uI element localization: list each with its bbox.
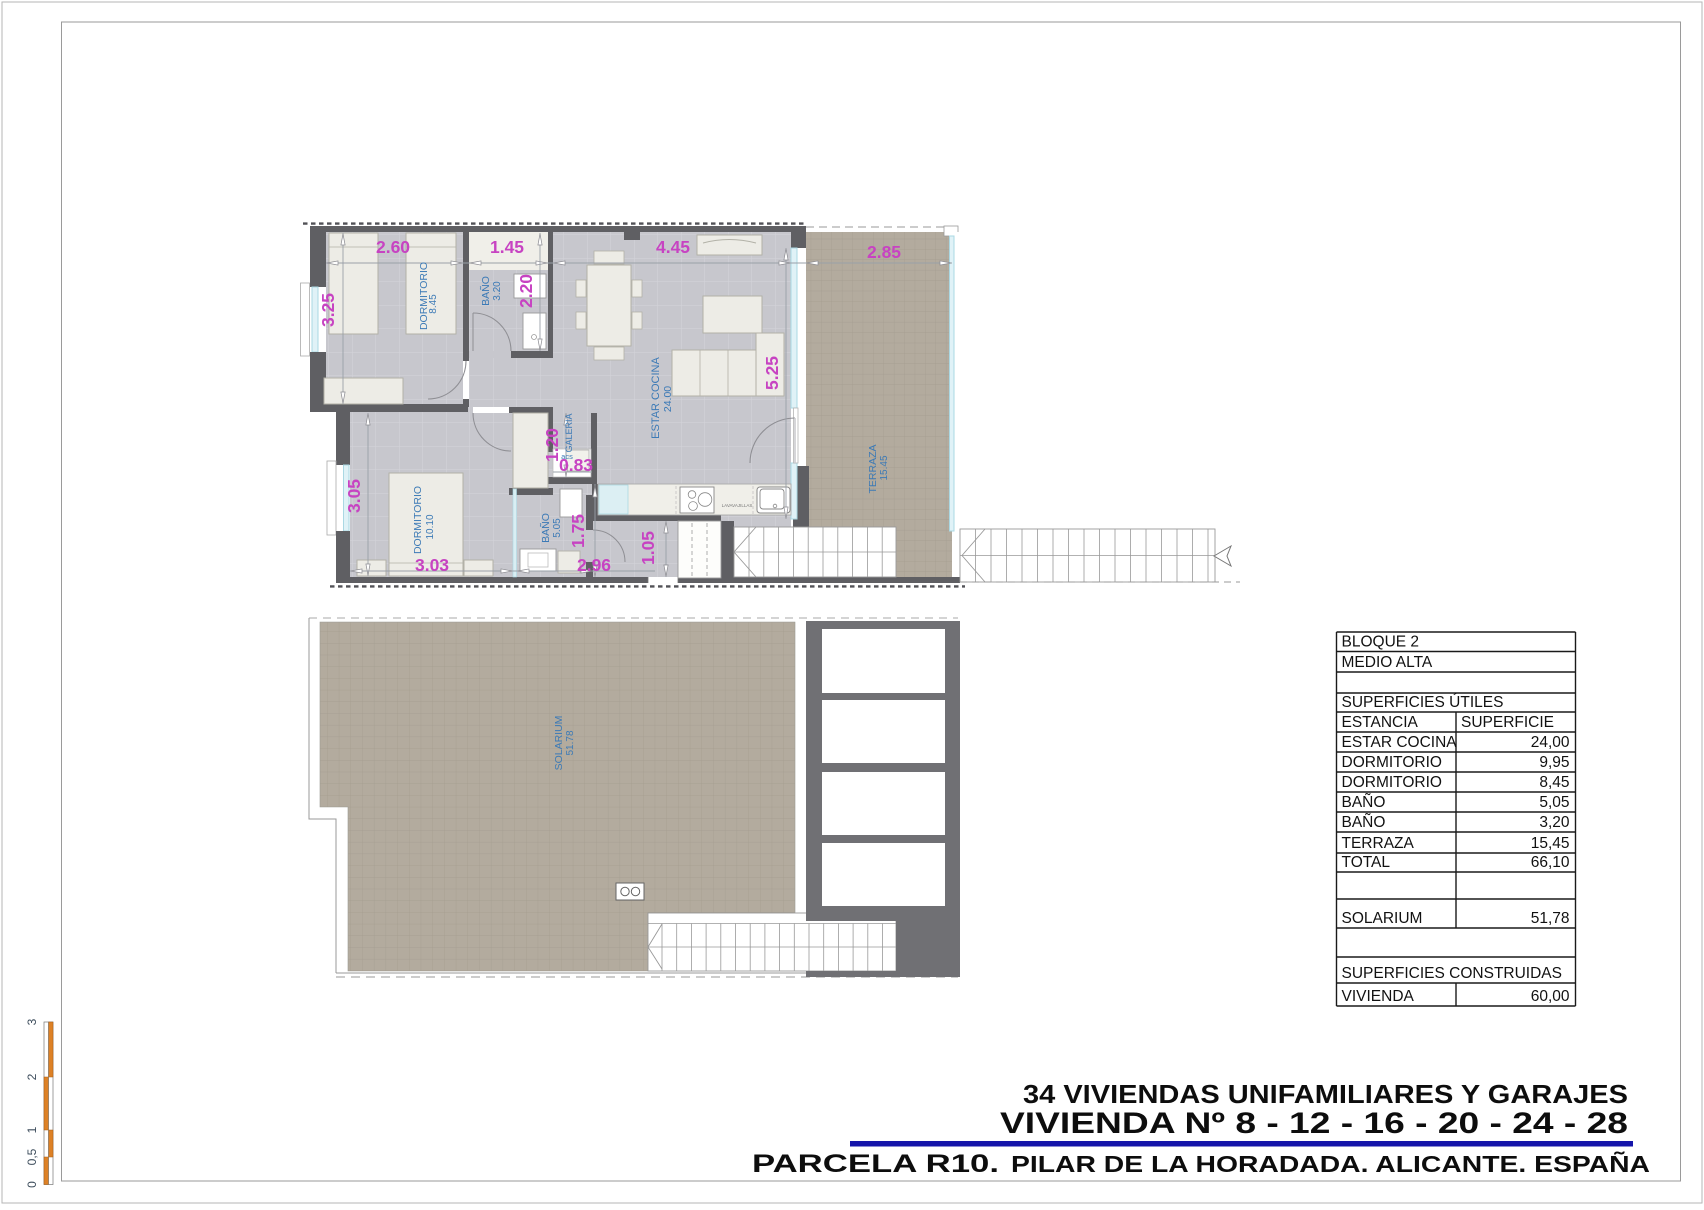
svg-text:SUPERFICIE: SUPERFICIE (1461, 714, 1554, 731)
svg-text:BAÑO: BAÑO (1342, 814, 1386, 831)
svg-text:ESTAR COCINA: ESTAR COCINA (1342, 734, 1458, 751)
svg-text:SUPERFICIES CONSTRUIDAS: SUPERFICIES CONSTRUIDAS (1342, 965, 1562, 982)
svg-text:8.45: 8.45 (428, 294, 439, 314)
svg-text:SOLARIUM: SOLARIUM (1342, 910, 1423, 927)
svg-text:BAÑO: BAÑO (479, 276, 492, 306)
svg-text:2.20: 2.20 (516, 274, 536, 308)
svg-text:15,45: 15,45 (1531, 835, 1570, 852)
svg-text:5,05: 5,05 (1539, 794, 1569, 811)
svg-text:BAÑO: BAÑO (539, 513, 552, 543)
svg-text:0,5: 0,5 (25, 1148, 39, 1165)
svg-text:LAVAVAJILLAS: LAVAVAJILLAS (722, 503, 753, 508)
svg-text:PARCELA R10.: PARCELA R10. (752, 1150, 999, 1178)
svg-text:2.96: 2.96 (577, 555, 611, 575)
svg-text:3.25: 3.25 (318, 293, 338, 327)
svg-text:1.75: 1.75 (568, 514, 588, 548)
svg-text:DORMITORIO: DORMITORIO (1342, 754, 1442, 771)
svg-text:51.78: 51.78 (565, 730, 576, 755)
svg-text:66,10: 66,10 (1531, 854, 1570, 871)
svg-text:51,78: 51,78 (1531, 910, 1570, 927)
svg-text:GALERIA: GALERIA (564, 413, 574, 452)
svg-text:0: 0 (25, 1181, 39, 1188)
svg-text:3.05: 3.05 (344, 479, 364, 513)
svg-text:acs: acs (561, 452, 573, 461)
svg-text:60,00: 60,00 (1531, 988, 1570, 1005)
svg-text:10.10: 10.10 (425, 514, 436, 539)
svg-text:3.20: 3.20 (492, 281, 503, 301)
svg-text:DORMITORIO: DORMITORIO (412, 486, 424, 554)
svg-text:3: 3 (25, 1018, 39, 1025)
svg-text:VIVIENDA: VIVIENDA (1342, 988, 1415, 1005)
svg-text:2: 2 (25, 1073, 39, 1080)
svg-text:TERRAZA: TERRAZA (867, 444, 879, 493)
svg-text:1: 1 (25, 1126, 39, 1133)
svg-text:VIVIENDA Nº 8 - 12 - 16 - 20 -: VIVIENDA Nº 8 - 12 - 16 - 20 - 24 - 28 (1000, 1107, 1628, 1140)
svg-text:DORMITORIO: DORMITORIO (1342, 774, 1442, 791)
svg-text:TERRAZA: TERRAZA (1342, 835, 1415, 852)
svg-text:PILAR DE LA HORADADA. ALICANTE: PILAR DE LA HORADADA. ALICANTE. ESPAÑA (1011, 1150, 1650, 1177)
svg-text:5.05: 5.05 (552, 518, 563, 538)
svg-text:3.03: 3.03 (415, 555, 449, 575)
svg-text:SOLARIUM: SOLARIUM (553, 716, 565, 771)
svg-text:1.05: 1.05 (638, 531, 658, 565)
svg-text:MEDIO ALTA: MEDIO ALTA (1342, 654, 1433, 671)
svg-text:9,95: 9,95 (1539, 754, 1569, 771)
svg-text:3,20: 3,20 (1539, 814, 1570, 831)
svg-text:4.45: 4.45 (656, 237, 690, 257)
svg-text:15.45: 15.45 (879, 455, 890, 480)
svg-text:BAÑO: BAÑO (1342, 794, 1386, 811)
svg-text:5.25: 5.25 (762, 356, 782, 390)
svg-text:ESTANCIA: ESTANCIA (1342, 714, 1419, 731)
svg-text:24.00: 24.00 (662, 386, 674, 412)
svg-text:34 VIVIENDAS UNIFAMILIARES Y G: 34 VIVIENDAS UNIFAMILIARES Y GARAJES (1023, 1079, 1628, 1109)
svg-text:8,45: 8,45 (1539, 774, 1569, 791)
svg-text:24,00: 24,00 (1531, 734, 1570, 751)
svg-text:2.60: 2.60 (376, 237, 410, 257)
svg-text:1.45: 1.45 (490, 237, 524, 257)
svg-text:SUPERFICIES ÚTILES: SUPERFICIES ÚTILES (1342, 694, 1504, 711)
svg-text:TOTAL: TOTAL (1342, 854, 1391, 871)
svg-text:BLOQUE 2: BLOQUE 2 (1342, 634, 1420, 651)
svg-text:2.85: 2.85 (867, 242, 901, 262)
svg-text:ESTAR COCINA: ESTAR COCINA (650, 356, 662, 438)
